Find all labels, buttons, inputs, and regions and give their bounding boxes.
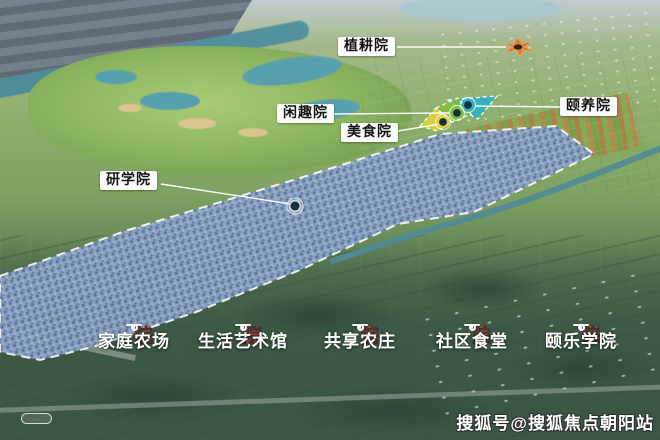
- green-ring-marker: [450, 106, 465, 121]
- gray-ring-marker: [287, 198, 303, 214]
- legend-subtitle: 颐乐学院: [545, 327, 617, 352]
- orange-flower-marker: [503, 38, 533, 57]
- legend-subtitle: 生活艺术馆: [198, 327, 288, 352]
- residential-band: [0, 126, 594, 360]
- callout-yanxueyuan: 研学院: [100, 171, 157, 190]
- legend-subtitle: 社区食堂: [436, 327, 508, 352]
- callout-yiyangyuan: 颐养院: [560, 97, 617, 116]
- mini-badge: [21, 413, 52, 424]
- annotation-overlay: [0, 0, 660, 440]
- callout-zhigengyuan: 植耕院: [338, 37, 395, 56]
- legend-subtitle: 共享农庄: [324, 327, 396, 352]
- teal-ring-marker: [461, 98, 476, 113]
- callout-meishiyuan: 美食院: [341, 123, 398, 142]
- sohu-watermark: 搜狐号@搜狐焦点朝阳站: [456, 409, 654, 434]
- legend-subtitle: 家庭农场: [98, 327, 170, 352]
- aerial-masterplan-rendering: 植耕院 闲趣院 美食院 颐养院 研学院 植耕院 家庭农场 颐养院 生活艺术馆 闲…: [0, 0, 660, 440]
- yellow-ring-marker: [436, 115, 451, 130]
- callout-xianquyuan: 闲趣院: [277, 104, 334, 123]
